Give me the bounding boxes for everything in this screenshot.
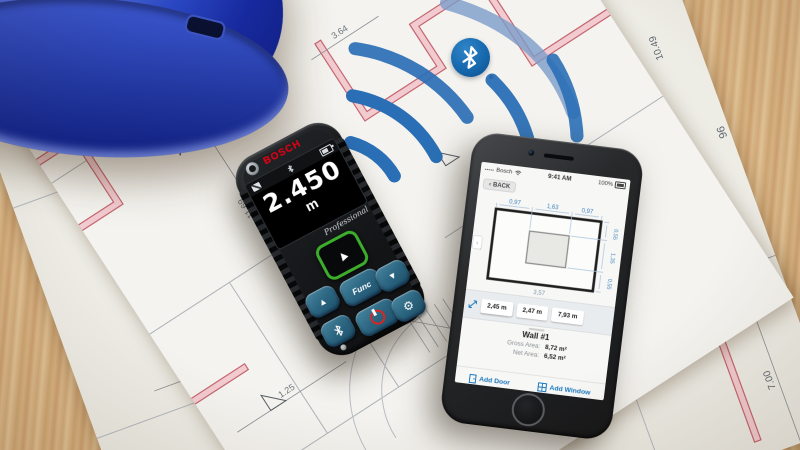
measurement-chip[interactable]: 2,45 m — [480, 298, 513, 316]
bluetooth-key-icon — [331, 324, 345, 339]
page-prev-chip[interactable]: ‹ — [472, 235, 483, 249]
bluetooth-status-icon — [286, 163, 296, 174]
door-icon — [469, 374, 477, 384]
battery-icon — [615, 181, 627, 189]
dim-label: 96 — [713, 125, 728, 141]
dim-label: 10.49 — [647, 34, 666, 62]
dim-label: 3.64 — [329, 23, 349, 41]
measurement-chip[interactable]: 7,93 m — [551, 307, 584, 325]
dim-right-3: 0,55 — [605, 278, 612, 289]
back-label: BACK — [493, 182, 511, 190]
window-outline[interactable] — [526, 231, 570, 268]
dim-bottom: 3,57 — [533, 290, 546, 297]
dim-top-left: 0,97 — [509, 199, 522, 206]
wall-diagram: 0,97 1,63 0,97 0,55 1,35 0,55 2,45 3,57 … — [466, 192, 627, 308]
add-door-label: Add Door — [479, 376, 511, 387]
laser-warning-icon — [251, 182, 262, 192]
measure-arrow-icon: ▲ — [332, 245, 352, 265]
power-icon — [367, 307, 387, 327]
bluetooth-badge: ® — [448, 35, 492, 79]
registered-mark: ® — [489, 75, 494, 82]
scene: 5.74 2.00 96 7.00 10.49 5.51 / 80 IL. — [0, 0, 800, 450]
dim-top-mid: 1,63 — [546, 204, 559, 211]
up-arrow-icon: ▲ — [316, 295, 329, 308]
dim-top-right: 0,97 — [581, 208, 594, 215]
down-arrow-icon: ▼ — [386, 269, 399, 282]
dim-right-2: 1,35 — [608, 253, 615, 264]
smartphone: ••••• Bosch 9:41 AM 100% ‹ BACK — [439, 131, 645, 442]
carrier-label: Bosch — [496, 167, 513, 175]
back-chevron-icon: ‹ — [489, 181, 492, 187]
gear-icon: ⚙ — [401, 297, 417, 314]
measurement-chip[interactable]: 2,47 m — [516, 303, 549, 321]
battery-percent: 100% — [598, 180, 613, 188]
dim-label: 7.00 — [761, 368, 778, 390]
back-button[interactable]: ‹ BACK — [482, 178, 516, 193]
dim-label: 1.25 — [276, 382, 296, 400]
signal-strength-icon: ••••• — [485, 166, 495, 172]
bluetooth-icon — [459, 44, 480, 71]
dim-right-1: 0,55 — [611, 229, 618, 240]
resize-arrows-icon — [468, 299, 478, 309]
phone-screen: ••••• Bosch 9:41 AM 100% ‹ BACK — [455, 162, 631, 401]
window-icon — [537, 382, 547, 392]
